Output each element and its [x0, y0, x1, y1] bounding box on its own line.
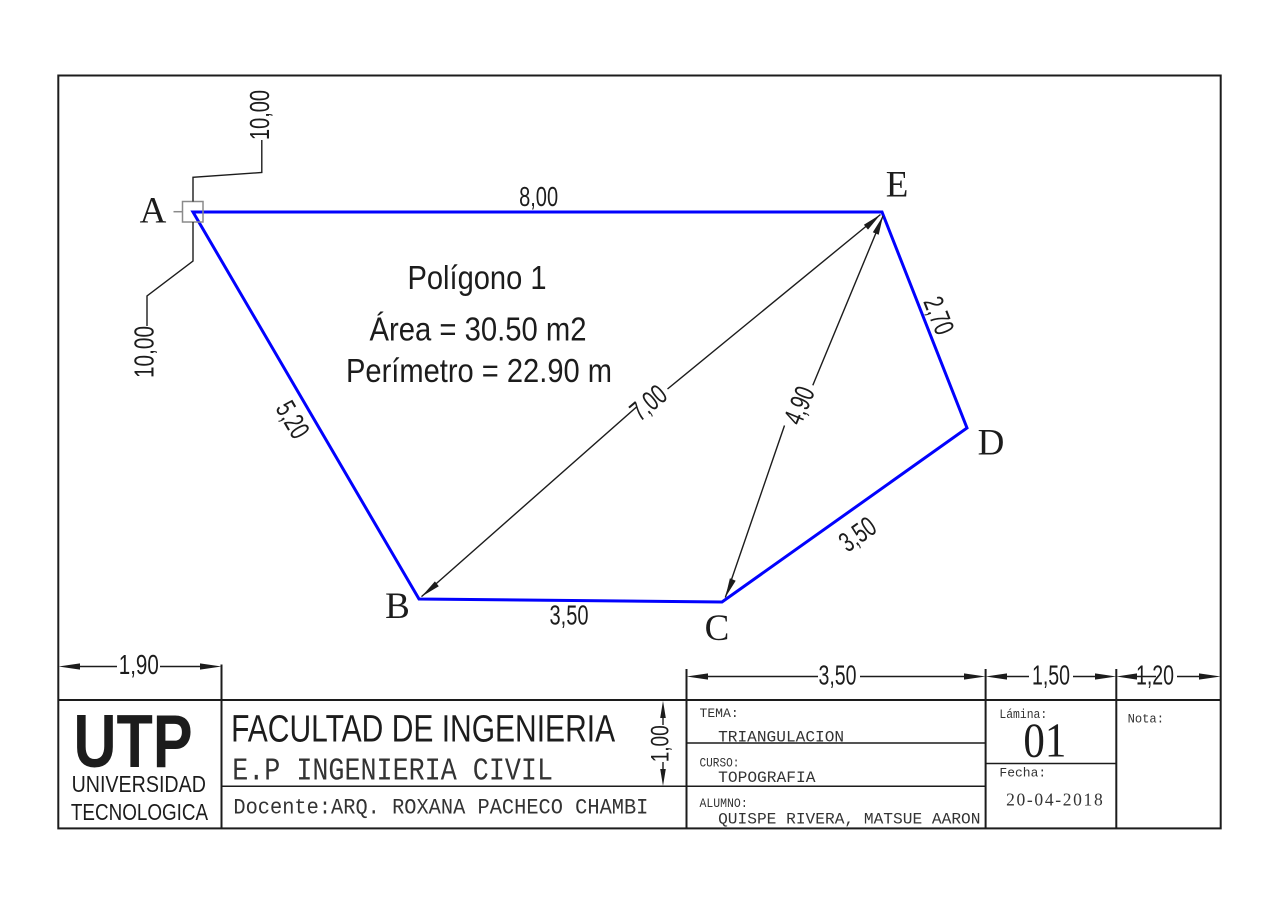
- svg-text:10,00: 10,00: [244, 90, 275, 140]
- svg-text:FACULTAD DE INGENIERIA: FACULTAD DE INGENIERIA: [231, 709, 616, 751]
- svg-text:Docente:ARQ. ROXANA PACHECO CH: Docente:ARQ. ROXANA PACHECO CHAMBI: [233, 795, 648, 820]
- svg-text:C: C: [705, 608, 730, 649]
- svg-text:Fecha:: Fecha:: [999, 766, 1046, 781]
- svg-text:UNIVERSIDAD: UNIVERSIDAD: [72, 771, 206, 797]
- svg-text:D: D: [978, 422, 1005, 463]
- svg-text:1,20: 1,20: [1136, 660, 1174, 691]
- svg-text:10,00: 10,00: [129, 326, 160, 378]
- svg-text:2,70: 2,70: [917, 292, 960, 339]
- svg-text:20-04-2018: 20-04-2018: [1006, 789, 1103, 809]
- svg-text:TOPOGRAFIA: TOPOGRAFIA: [718, 769, 816, 787]
- svg-text:01: 01: [1023, 713, 1066, 768]
- svg-text:B: B: [385, 586, 410, 627]
- svg-text:Nota:: Nota:: [1128, 712, 1164, 727]
- svg-text:TEMA:: TEMA:: [700, 706, 739, 721]
- svg-text:A: A: [140, 191, 167, 232]
- svg-text:Polígono 1: Polígono 1: [408, 259, 547, 296]
- svg-text:3,50: 3,50: [550, 600, 589, 631]
- svg-text:7,00: 7,00: [624, 379, 673, 427]
- svg-text:Perímetro = 22.90 m: Perímetro = 22.90 m: [346, 352, 612, 389]
- svg-text:1,50: 1,50: [1032, 660, 1070, 691]
- svg-text:Área = 30.50 m2: Área = 30.50 m2: [370, 311, 587, 348]
- svg-text:3,50: 3,50: [819, 660, 857, 691]
- svg-text:QUISPE RIVERA, MATSUE AARON: QUISPE RIVERA, MATSUE AARON: [718, 811, 980, 829]
- svg-text:1,90: 1,90: [119, 649, 159, 680]
- svg-text:8,00: 8,00: [519, 181, 558, 212]
- svg-text:E.P INGENIERIA CIVIL: E.P INGENIERIA CIVIL: [232, 755, 553, 790]
- svg-text:4,90: 4,90: [778, 382, 821, 429]
- svg-text:ALUMNO:: ALUMNO:: [700, 796, 748, 811]
- svg-text:E: E: [886, 165, 909, 206]
- svg-text:TRIANGULACION: TRIANGULACION: [718, 729, 844, 747]
- svg-text:1,00: 1,00: [647, 725, 675, 762]
- svg-text:5,20: 5,20: [270, 395, 316, 443]
- svg-text:TECNOLOGICA: TECNOLOGICA: [71, 799, 208, 825]
